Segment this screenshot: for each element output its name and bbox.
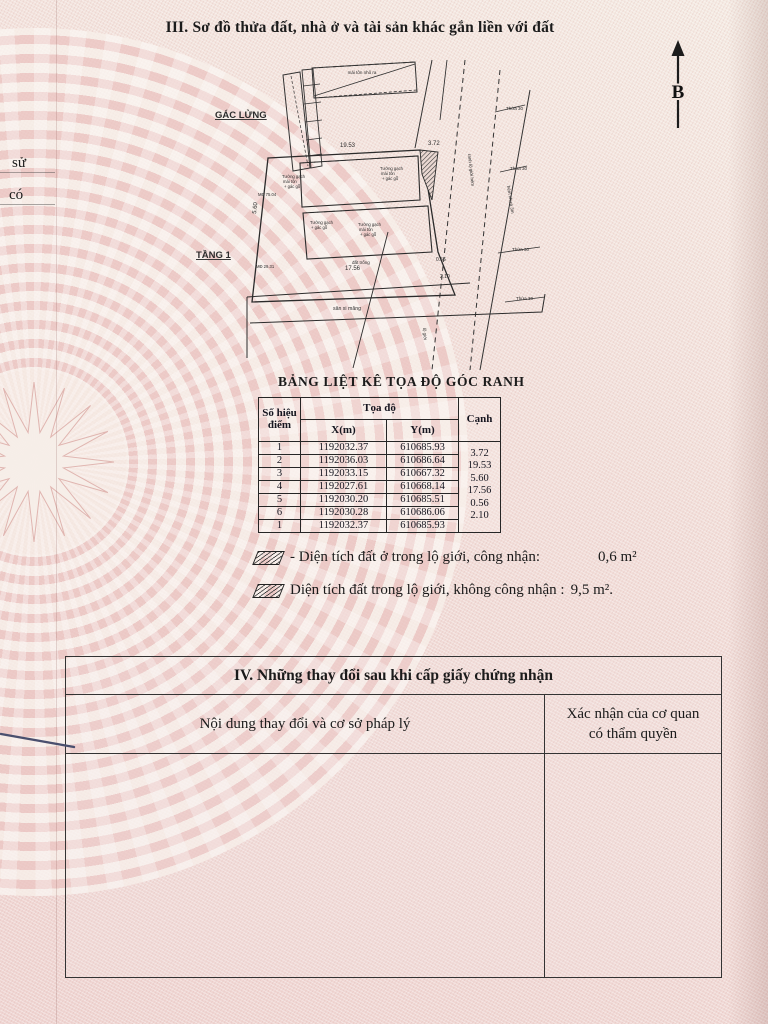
cell-point: 4 [259, 481, 301, 494]
edge-value: 0.56 [459, 498, 500, 510]
building-note: + gác gỗ [284, 184, 301, 189]
cell-point: 2 [259, 455, 301, 468]
cell-y: 610667.32 [387, 468, 459, 481]
coord-rows: 11192032.37610685.933.7219.535.6017.560.… [259, 442, 501, 533]
section4-col-left-header: Nội dung thay đổi và cơ sở pháp lý [66, 695, 545, 753]
coordinate-table-title: BẢNG LIỆT KÊ TỌA ĐỘ GÓC RANH [278, 374, 525, 390]
vacant-label: đất trống [352, 260, 370, 265]
building-note: + gác gỗ [360, 232, 377, 237]
cell-y: 610686.64 [387, 455, 459, 468]
cell-y: 610686.06 [387, 507, 459, 520]
cell-x: 1192032.37 [301, 442, 387, 455]
edge-value: 2.10 [459, 510, 500, 522]
legend-item: - Diện tích đất ở trong lộ giới, công nh… [255, 549, 637, 566]
edge-value: 17.56 [459, 485, 500, 497]
cell-y: 610685.51 [387, 494, 459, 507]
cell-y: 610685.93 [387, 442, 459, 455]
col-header-coords: Tọa độ [301, 398, 459, 420]
road-name-label: lộ giới [422, 328, 428, 341]
building-note: + gác gỗ [382, 176, 399, 181]
legend-text: - Diện tích đất ở trong lộ giới, công nh… [290, 549, 540, 566]
margin-rule-line [0, 204, 55, 205]
cell-point: 1 [259, 520, 301, 533]
margin-text-fragment: có [9, 187, 23, 204]
section4-col-right-header: Xác nhận của cơ quan có thẩm quyền [545, 695, 721, 753]
area-legend: - Diện tích đất ở trong lộ giới, công nh… [255, 549, 637, 615]
legend-text: Diện tích đất trong lộ giới, không công … [290, 582, 565, 599]
cell-x: 1192030.28 [301, 507, 387, 520]
hatch-swatch-icon [252, 551, 285, 565]
col-header-edge: Cạnh [459, 398, 501, 442]
section4-body-right-cell [545, 754, 721, 977]
lot-label: Thửa 30 [512, 246, 530, 252]
north-label: B [672, 82, 685, 103]
margin-text-fragment: sử [12, 155, 26, 172]
section4-header-row: Nội dung thay đổi và cơ sở pháp lý Xác n… [66, 695, 721, 754]
col-header-y: Y(m) [387, 420, 459, 442]
legend-value: 9,5 m². [571, 582, 613, 599]
road-strip-hatch [420, 150, 438, 200]
cell-x: 1192032.37 [301, 520, 387, 533]
road-name-label: ranh lộ giới hẻm [467, 154, 475, 187]
col-header-x: X(m) [301, 420, 387, 442]
tiny-annotation: MĐ 29.31 [256, 264, 275, 269]
dimension-label: 0.56 [436, 257, 446, 263]
dimension-label: 3.72 [428, 141, 440, 147]
tiny-annotation: MĐ 75.04 [258, 192, 277, 197]
edge-value: 19.53 [459, 460, 500, 472]
table-row: 11192032.37610685.933.7219.535.6017.560.… [259, 442, 501, 455]
lot-label: Thửa 30 [510, 165, 528, 171]
lot-label: Thửa 30 [506, 105, 524, 111]
tang1-label: TẦNG 1 [196, 250, 232, 261]
cell-point: 3 [259, 468, 301, 481]
coordinate-table: Số hiệuđiểm Tọa độ Cạnh X(m) Y(m) 111920… [258, 397, 501, 533]
section4-body-left-cell [66, 754, 545, 977]
coordinate-table-section: BẢNG LIỆT KÊ TỌA ĐỘ GÓC RANH Số hiệuđiểm… [258, 374, 525, 533]
emblem-star [0, 377, 119, 547]
cell-point: 5 [259, 494, 301, 507]
section3-title: III. Sơ đồ thửa đất, nhà ở và tài sản kh… [0, 19, 720, 37]
cell-x: 1192036.03 [301, 455, 387, 468]
yard-label: sân xi măng [333, 306, 361, 312]
cell-y: 610668.14 [387, 481, 459, 494]
cell-x: 1192030.20 [301, 494, 387, 507]
legend-value: 0,6 m² [598, 549, 637, 566]
page-edge-shadow [728, 0, 768, 1024]
cell-point: 1 [259, 442, 301, 455]
cell-y: 610685.93 [387, 520, 459, 533]
road-name-label: hẻm nhựa 3m [506, 185, 515, 214]
dimension-label: 17.56 [345, 266, 361, 272]
north-arrow-icon: B [648, 36, 712, 136]
plot-diagram: mái tôn nhô ra GÁC LỬNG Tường gạch mái t… [170, 46, 600, 378]
margin-rule-line [0, 172, 55, 173]
hatch-swatch-icon [252, 584, 285, 598]
gac-lung-label: GÁC LỬNG [215, 109, 267, 121]
cell-point: 6 [259, 507, 301, 520]
edge-values-cell: 3.7219.535.6017.560.562.10 [459, 442, 501, 533]
dimension-label: 5.60 [252, 201, 259, 214]
cell-x: 1192033.15 [301, 468, 387, 481]
dimension-label: 19.53 [340, 143, 356, 149]
cell-x: 1192027.61 [301, 481, 387, 494]
edge-value: 3.72 [459, 448, 500, 460]
col-header-point: Số hiệuđiểm [259, 398, 301, 442]
edge-value: 5.60 [459, 473, 500, 485]
page-fold-crease [56, 0, 57, 1024]
building-note: + gác gỗ [311, 225, 328, 230]
legend-item: Diện tích đất trong lộ giới, không công … [255, 582, 637, 599]
lot-label: Thửa 30 [516, 295, 534, 301]
section4-table: IV. Những thay đổi sau khi cấp giấy chứn… [65, 656, 722, 978]
roof-note-label: mái tôn nhô ra [348, 70, 377, 75]
section4-body [66, 754, 721, 977]
section4-title: IV. Những thay đổi sau khi cấp giấy chứn… [66, 657, 721, 695]
pen-mark [0, 700, 100, 770]
